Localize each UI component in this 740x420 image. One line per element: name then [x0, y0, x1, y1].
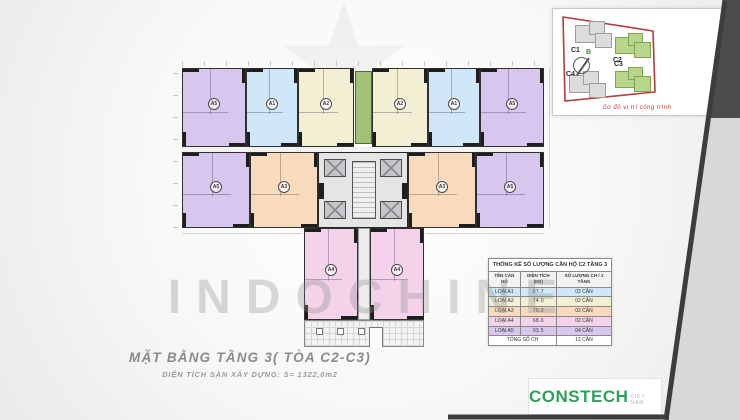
cell-name: LOẠI A5: [489, 326, 521, 336]
cell-count: 02 CĂN: [556, 307, 611, 317]
cell-area: 76.2: [520, 307, 556, 317]
apartment-statistics-table: THỐNG KÊ SỐ LƯỢNG CĂN HỘ C2 TẦNG 3 TÊN C…: [488, 258, 612, 346]
unit-badge: A4: [325, 264, 337, 276]
logo-brand-text: CONSTECH: [529, 387, 628, 407]
cell-name: LOẠI A1: [489, 287, 521, 297]
apartment-unit-a2-top-right: A2: [372, 68, 428, 147]
col-header-name: TÊN CĂN HỘ: [489, 272, 521, 287]
unit-badge: A4: [391, 264, 403, 276]
cell-count: 02 CĂN: [556, 297, 611, 307]
table-title: THỐNG KÊ SỐ LƯỢNG CĂN HỘ C2 TẦNG 3: [489, 259, 612, 272]
unit-badge: A3: [436, 181, 448, 193]
cell-count: 02 CĂN: [556, 316, 611, 326]
unit-badge: A5: [210, 181, 222, 193]
stair-core-top: [355, 71, 372, 144]
table-row: LOẠI A4 68.6 02 CĂN: [489, 316, 612, 326]
unit-badge: A5: [208, 98, 220, 110]
table-row: LOẠI A3 76.2 02 CĂN: [489, 307, 612, 317]
building-label-c4: C4: [566, 71, 575, 78]
apartment-unit-a4-right: A4: [370, 228, 424, 320]
skylight-icon: [337, 328, 344, 335]
apartment-unit-a5-mid-right: A5: [476, 152, 544, 228]
unit-badge: A1: [266, 98, 278, 110]
site-map-caption: Sơ đồ vị trí công trình: [553, 105, 721, 111]
dimension-line-right: [549, 68, 550, 228]
building-cluster-c1: [575, 21, 611, 47]
unit-badge: A5: [506, 98, 518, 110]
skylight-icon: [316, 328, 323, 335]
apartment-unit-a4-left: A4: [304, 228, 358, 320]
table-row: LOẠI A5 93.5 04 CĂN: [489, 326, 612, 336]
cell-area: 93.5: [520, 326, 556, 336]
cell-name: LOẠI A2: [489, 297, 521, 307]
cell-count: 02 CĂN: [556, 287, 611, 297]
drawing-title: MẶT BẰNG TẦNG 3( TÒA C2-C3): [0, 350, 500, 365]
dimension-line-top: [182, 61, 544, 66]
apartment-unit-a2-top-left: A2: [298, 68, 354, 147]
elevator-icon: [380, 159, 402, 177]
elevator-icon: [324, 159, 346, 177]
building-label-c3: C3: [614, 61, 623, 68]
table-row: LOẠI A2 74.0 02 CĂN: [489, 297, 612, 307]
compass-icon: [573, 57, 590, 74]
core-wall: [402, 183, 407, 199]
elevator-core: [318, 152, 408, 228]
unit-badge: A1: [448, 98, 460, 110]
constech-logo: CONSTECH VIET NAM: [528, 378, 662, 415]
apartment-unit-a3-mid-left: A3: [250, 152, 318, 228]
cell-name: LOẠI A3: [489, 307, 521, 317]
corridor: [358, 228, 370, 320]
cell-total-count: 12 CĂN: [556, 336, 611, 346]
elevator-icon: [380, 201, 402, 219]
table-total-row: TỔNG SỐ CH 12 CĂN: [489, 336, 612, 346]
unit-badge: A3: [278, 181, 290, 193]
elevator-icon: [324, 201, 346, 219]
col-header-count: SỐ LƯỢNG CH / 1 TẦNG: [556, 272, 611, 287]
building-cluster-c2: [615, 33, 651, 57]
cell-area: 68.6: [520, 316, 556, 326]
site-location-map: B C1 C2 C3 C4 Sơ đồ vị trí công trình: [552, 8, 722, 116]
compass-label: B: [586, 49, 591, 56]
apartment-unit-a1-top-left: A1: [246, 68, 298, 147]
dimension-line-bottom-right: [426, 233, 544, 234]
building-cluster-c3: [615, 67, 651, 91]
cell-name: LOẠI A4: [489, 316, 521, 326]
cell-area: 67.7: [520, 287, 556, 297]
dimension-line-left: [173, 68, 178, 228]
apartment-unit-a1-top-right: A1: [428, 68, 480, 147]
col-header-area: DIỆN TÍCH (M2): [520, 272, 556, 287]
terrace-hatched-area: [304, 320, 424, 347]
core-wall: [319, 183, 324, 199]
skylight-icon: [358, 328, 365, 335]
unit-badge: A2: [320, 98, 332, 110]
drawing-sheet: { "watermark": { "text": "INDOCHINE", "s…: [0, 0, 740, 420]
cell-area: 74.0: [520, 297, 556, 307]
logo-suffix-text: VIET NAM: [630, 394, 661, 406]
stair-icon: [352, 161, 376, 219]
unit-badge: A2: [394, 98, 406, 110]
building-label-c1: C1: [571, 47, 580, 54]
apartment-unit-a5-mid-left: A5: [182, 152, 250, 228]
apartment-unit-a3-mid-right: A3: [408, 152, 476, 228]
cell-total-label: TỔNG SỐ CH: [489, 336, 557, 346]
apartment-unit-a5-top-left: A5: [182, 68, 246, 147]
apartment-unit-a5-top-right: A5: [480, 68, 544, 147]
drawing-subtitle: DIỆN TÍCH SÀN XÂY DỰNG: S= 1322,0m2: [0, 370, 500, 379]
unit-badge: A5: [504, 181, 516, 193]
table-row: LOẠI A1 67.7 02 CĂN: [489, 287, 612, 297]
dimension-line-bottom-left: [182, 233, 302, 234]
cell-count: 04 CĂN: [556, 326, 611, 336]
table-header-row: TÊN CĂN HỘ DIỆN TÍCH (M2) SỐ LƯỢNG CH / …: [489, 272, 612, 287]
terrace-door: [369, 327, 383, 347]
